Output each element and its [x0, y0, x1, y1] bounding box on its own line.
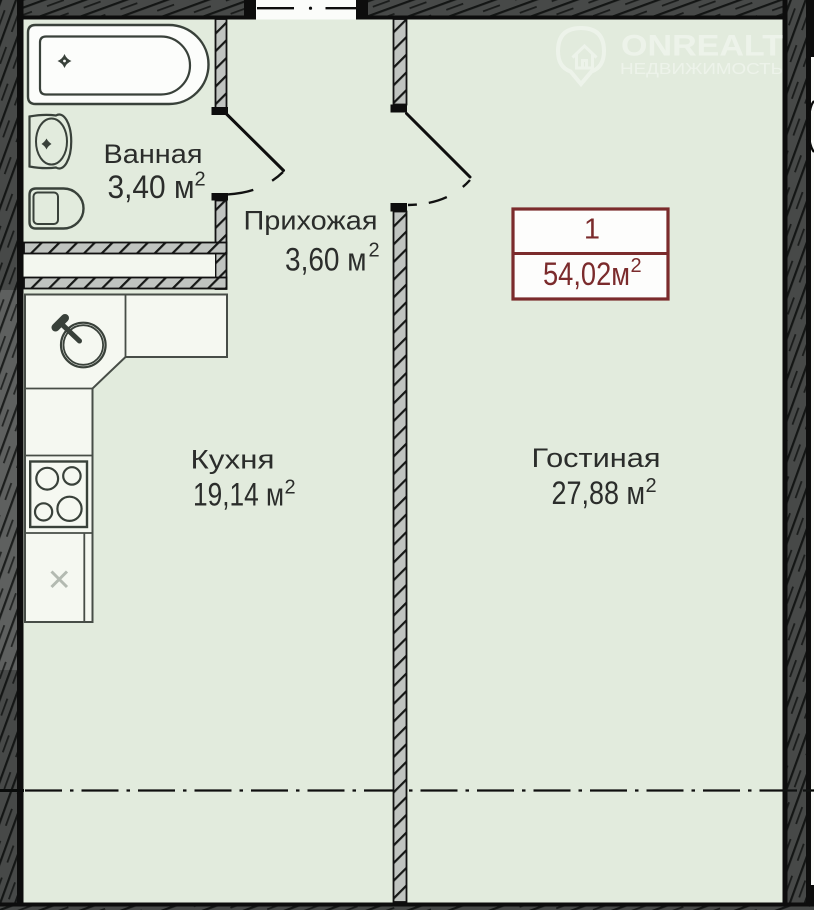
svg-text:Прихожая: Прихожая [244, 206, 378, 236]
svg-text:54,02м: 54,02м [543, 256, 630, 292]
svg-text:3,40 м: 3,40 м [108, 169, 195, 205]
svg-text:Гостиная: Гостиная [532, 443, 661, 473]
svg-text:1: 1 [584, 214, 600, 246]
svg-text:2: 2 [646, 475, 657, 497]
svg-text:ONREALT: ONREALT [621, 30, 783, 63]
svg-text:Кухня: Кухня [191, 445, 275, 475]
svg-text:3,60 м: 3,60 м [285, 242, 367, 278]
svg-text:НЕДВИЖИМОСТЬ: НЕДВИЖИМОСТЬ [620, 61, 783, 78]
svg-text:19,14 м: 19,14 м [193, 477, 284, 513]
svg-text:2: 2 [369, 240, 380, 262]
svg-text:Ванная: Ванная [104, 139, 203, 169]
svg-text:2: 2 [285, 477, 296, 499]
svg-text:2: 2 [631, 255, 642, 277]
svg-text:27,88 м: 27,88 м [552, 475, 646, 511]
svg-text:2: 2 [195, 169, 206, 191]
